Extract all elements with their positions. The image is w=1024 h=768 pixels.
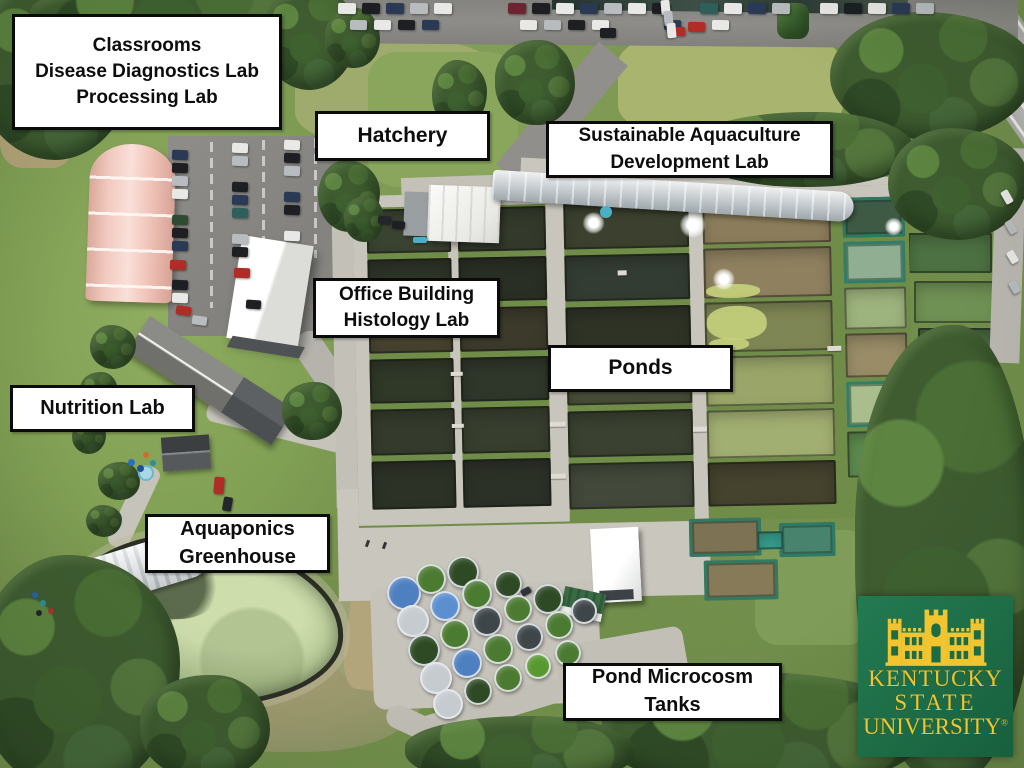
car (172, 189, 188, 200)
pond (564, 253, 690, 302)
small-shed (161, 434, 211, 471)
car (172, 228, 188, 239)
car (172, 150, 188, 161)
hatchery-building (427, 185, 501, 243)
car (232, 156, 248, 167)
barrel (137, 465, 144, 472)
car (520, 20, 537, 30)
microcosm-tank (433, 689, 463, 719)
pond (372, 460, 457, 510)
classrooms-building (85, 143, 176, 304)
car (284, 153, 300, 164)
microcosm-tank (533, 584, 563, 614)
microcosm-tank (571, 598, 597, 624)
car (916, 3, 934, 14)
car (724, 3, 742, 14)
car (284, 231, 300, 242)
car (232, 234, 248, 245)
car (172, 293, 188, 304)
microcosm-tank (483, 634, 513, 664)
car (600, 28, 616, 38)
barrel (36, 610, 42, 616)
pond (463, 458, 552, 508)
barrel (128, 459, 135, 466)
car (434, 3, 452, 14)
microcosm-tank (472, 606, 502, 636)
dock (452, 424, 464, 428)
label-aquaponics-greenhouse: Aquaponics Greenhouse (145, 514, 330, 573)
car (170, 260, 186, 271)
car (568, 20, 585, 30)
car (532, 3, 550, 14)
car (232, 182, 248, 193)
microcosm-tank (430, 591, 460, 621)
car (410, 3, 428, 14)
car (350, 20, 367, 30)
label-nutrition-lab: Nutrition Lab (10, 385, 195, 432)
logo-line-university: UNIVERSITY® (863, 715, 1008, 739)
barrel (48, 608, 54, 614)
microcosm-tank (440, 619, 470, 649)
pond (704, 559, 779, 601)
car (362, 3, 380, 14)
dock (827, 346, 841, 351)
dock (550, 422, 566, 427)
microcosm-tank (515, 623, 543, 651)
car (284, 166, 300, 177)
label-ponds: Ponds (548, 345, 733, 392)
car (544, 20, 561, 30)
label-sustainable-aquaculture: Sustainable Aquaculture Development Lab (546, 121, 833, 178)
car (284, 192, 300, 203)
dock (551, 474, 566, 479)
pond (689, 518, 762, 557)
logo-line-state: STATE (894, 691, 976, 715)
label-classrooms: Classrooms Disease Diagnostics Lab Proce… (12, 14, 282, 130)
dock (693, 427, 707, 432)
dock (451, 372, 463, 376)
barrel (150, 460, 156, 466)
microcosm-tank (525, 653, 551, 679)
car (398, 20, 415, 30)
parking-line (210, 142, 213, 308)
car (234, 268, 250, 279)
car (175, 305, 191, 316)
microcosm-tank (464, 677, 492, 705)
car (213, 477, 224, 495)
car (666, 23, 676, 39)
small-blue-tank (600, 206, 612, 218)
car (556, 3, 574, 14)
microcosm-tank (397, 605, 429, 637)
car (232, 208, 248, 219)
car (413, 237, 427, 243)
car (246, 299, 262, 309)
ksu-logo: KENTUCKY STATE UNIVERSITY® (858, 596, 1013, 757)
microcosm-tank (452, 648, 482, 678)
car (844, 3, 862, 14)
car (580, 3, 598, 14)
car (892, 3, 910, 14)
car (232, 247, 248, 258)
pond (460, 356, 549, 402)
car (172, 176, 188, 187)
tree-canopy (98, 462, 140, 500)
tree-canopy (140, 675, 270, 768)
label-pond-microcosm-tanks: Pond Microcosm Tanks (563, 663, 782, 721)
car (508, 3, 526, 14)
microcosm-tank (416, 564, 446, 594)
tree-canopy (325, 8, 380, 68)
car (374, 20, 391, 30)
car (386, 3, 404, 14)
pond (707, 408, 836, 459)
car (284, 140, 300, 151)
pond (779, 522, 836, 557)
pond (369, 358, 454, 404)
car (338, 3, 356, 14)
pond (914, 281, 1000, 323)
car (172, 280, 188, 291)
car (820, 3, 838, 14)
pond (843, 240, 906, 283)
car (604, 3, 622, 14)
pond (461, 406, 550, 454)
car (232, 143, 248, 154)
car (172, 215, 188, 226)
car (232, 195, 248, 206)
car (712, 20, 729, 30)
car (868, 3, 886, 14)
car (392, 220, 406, 229)
car (284, 205, 300, 216)
label-hatchery: Hatchery (315, 111, 490, 161)
pond (569, 461, 695, 510)
car (422, 20, 439, 30)
algae-patch (706, 305, 767, 340)
car (772, 3, 790, 14)
pond (568, 409, 694, 458)
registered-mark: ® (1001, 717, 1008, 727)
car (172, 163, 188, 174)
car (748, 3, 766, 14)
car (191, 315, 207, 326)
tree-canopy (282, 382, 342, 440)
car (688, 22, 705, 32)
label-office-building: Office Building Histology Lab (313, 278, 500, 338)
microcosm-tank (462, 579, 492, 609)
logo-line-kentucky: KENTUCKY (868, 667, 1003, 691)
tree-canopy (495, 40, 575, 125)
pond (844, 286, 907, 329)
microcosm-tank (504, 595, 532, 623)
pond (370, 408, 455, 456)
barrel (143, 452, 149, 458)
microcosm-tank (494, 664, 522, 692)
microcosm-tank (545, 611, 573, 639)
microcosm-tank (494, 570, 522, 598)
car (700, 3, 718, 14)
ksu-castle-icon (877, 605, 995, 667)
car (628, 3, 646, 14)
pond (708, 460, 837, 507)
car (172, 241, 188, 252)
pond (757, 531, 783, 550)
car (378, 215, 392, 224)
canopy-shelter (590, 527, 642, 603)
aerial-photo-slide: Classrooms Disease Diagnostics Lab Proce… (0, 0, 1024, 768)
dock (618, 270, 627, 275)
barrel (32, 592, 38, 598)
barrel (40, 600, 46, 606)
